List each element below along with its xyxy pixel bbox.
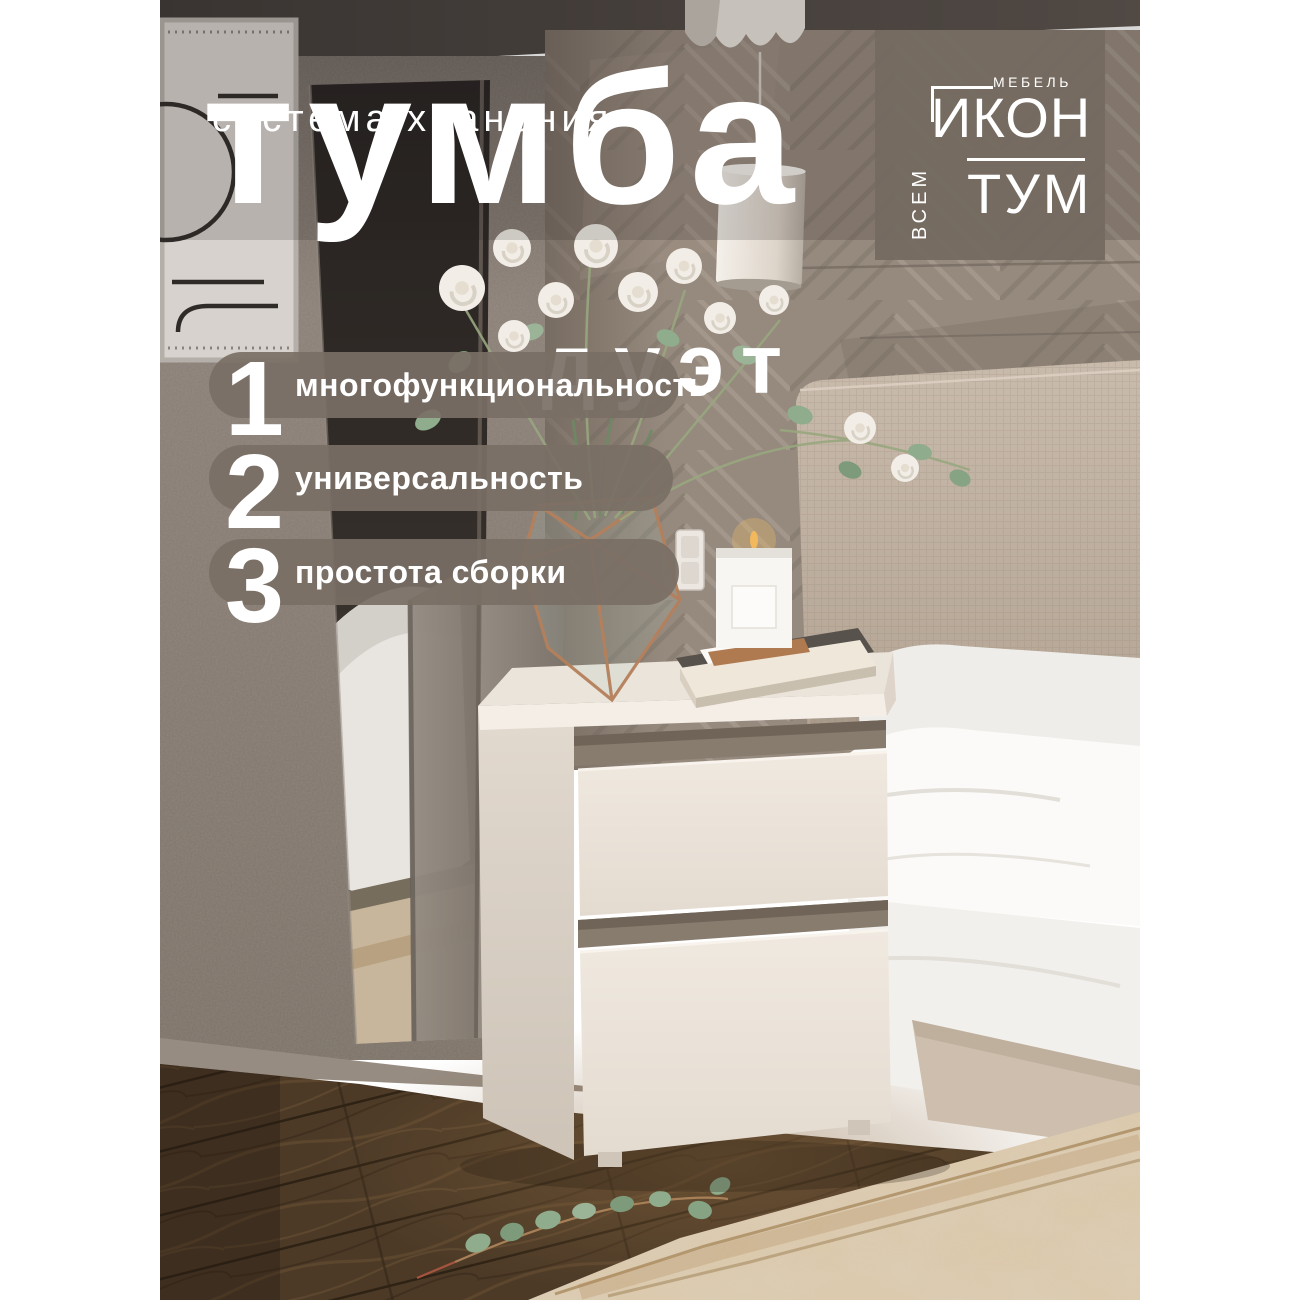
product-title: тумба <box>202 44 803 232</box>
feature-pill-2: 2 универсальность <box>209 445 673 511</box>
feature-pill-1: 1 многофункциональность <box>209 352 679 418</box>
nightstand <box>460 652 950 1192</box>
logo-divider <box>967 158 1085 161</box>
product-banner: система хранения тумба дуэт 1 многофункц… <box>0 0 1300 1300</box>
feature-number-3: 3 <box>225 533 284 639</box>
brand-logo: МЕБЕЛЬ ИКОН ТУМ ВСЕМ <box>875 30 1105 260</box>
logo-side-word: ВСЕМ <box>909 167 932 240</box>
logo-word-bottom: ТУМ <box>967 166 1092 222</box>
drawer-2 <box>580 930 891 1156</box>
logo-word-top: ИКОН <box>931 90 1091 146</box>
wall-socket <box>676 530 704 590</box>
feature-pill-3: 3 простота сборки <box>209 539 679 605</box>
feature-list: 1 многофункциональность 2 универсальност… <box>209 352 679 632</box>
drawer-1 <box>578 752 888 916</box>
nightstand-side <box>478 706 574 1160</box>
